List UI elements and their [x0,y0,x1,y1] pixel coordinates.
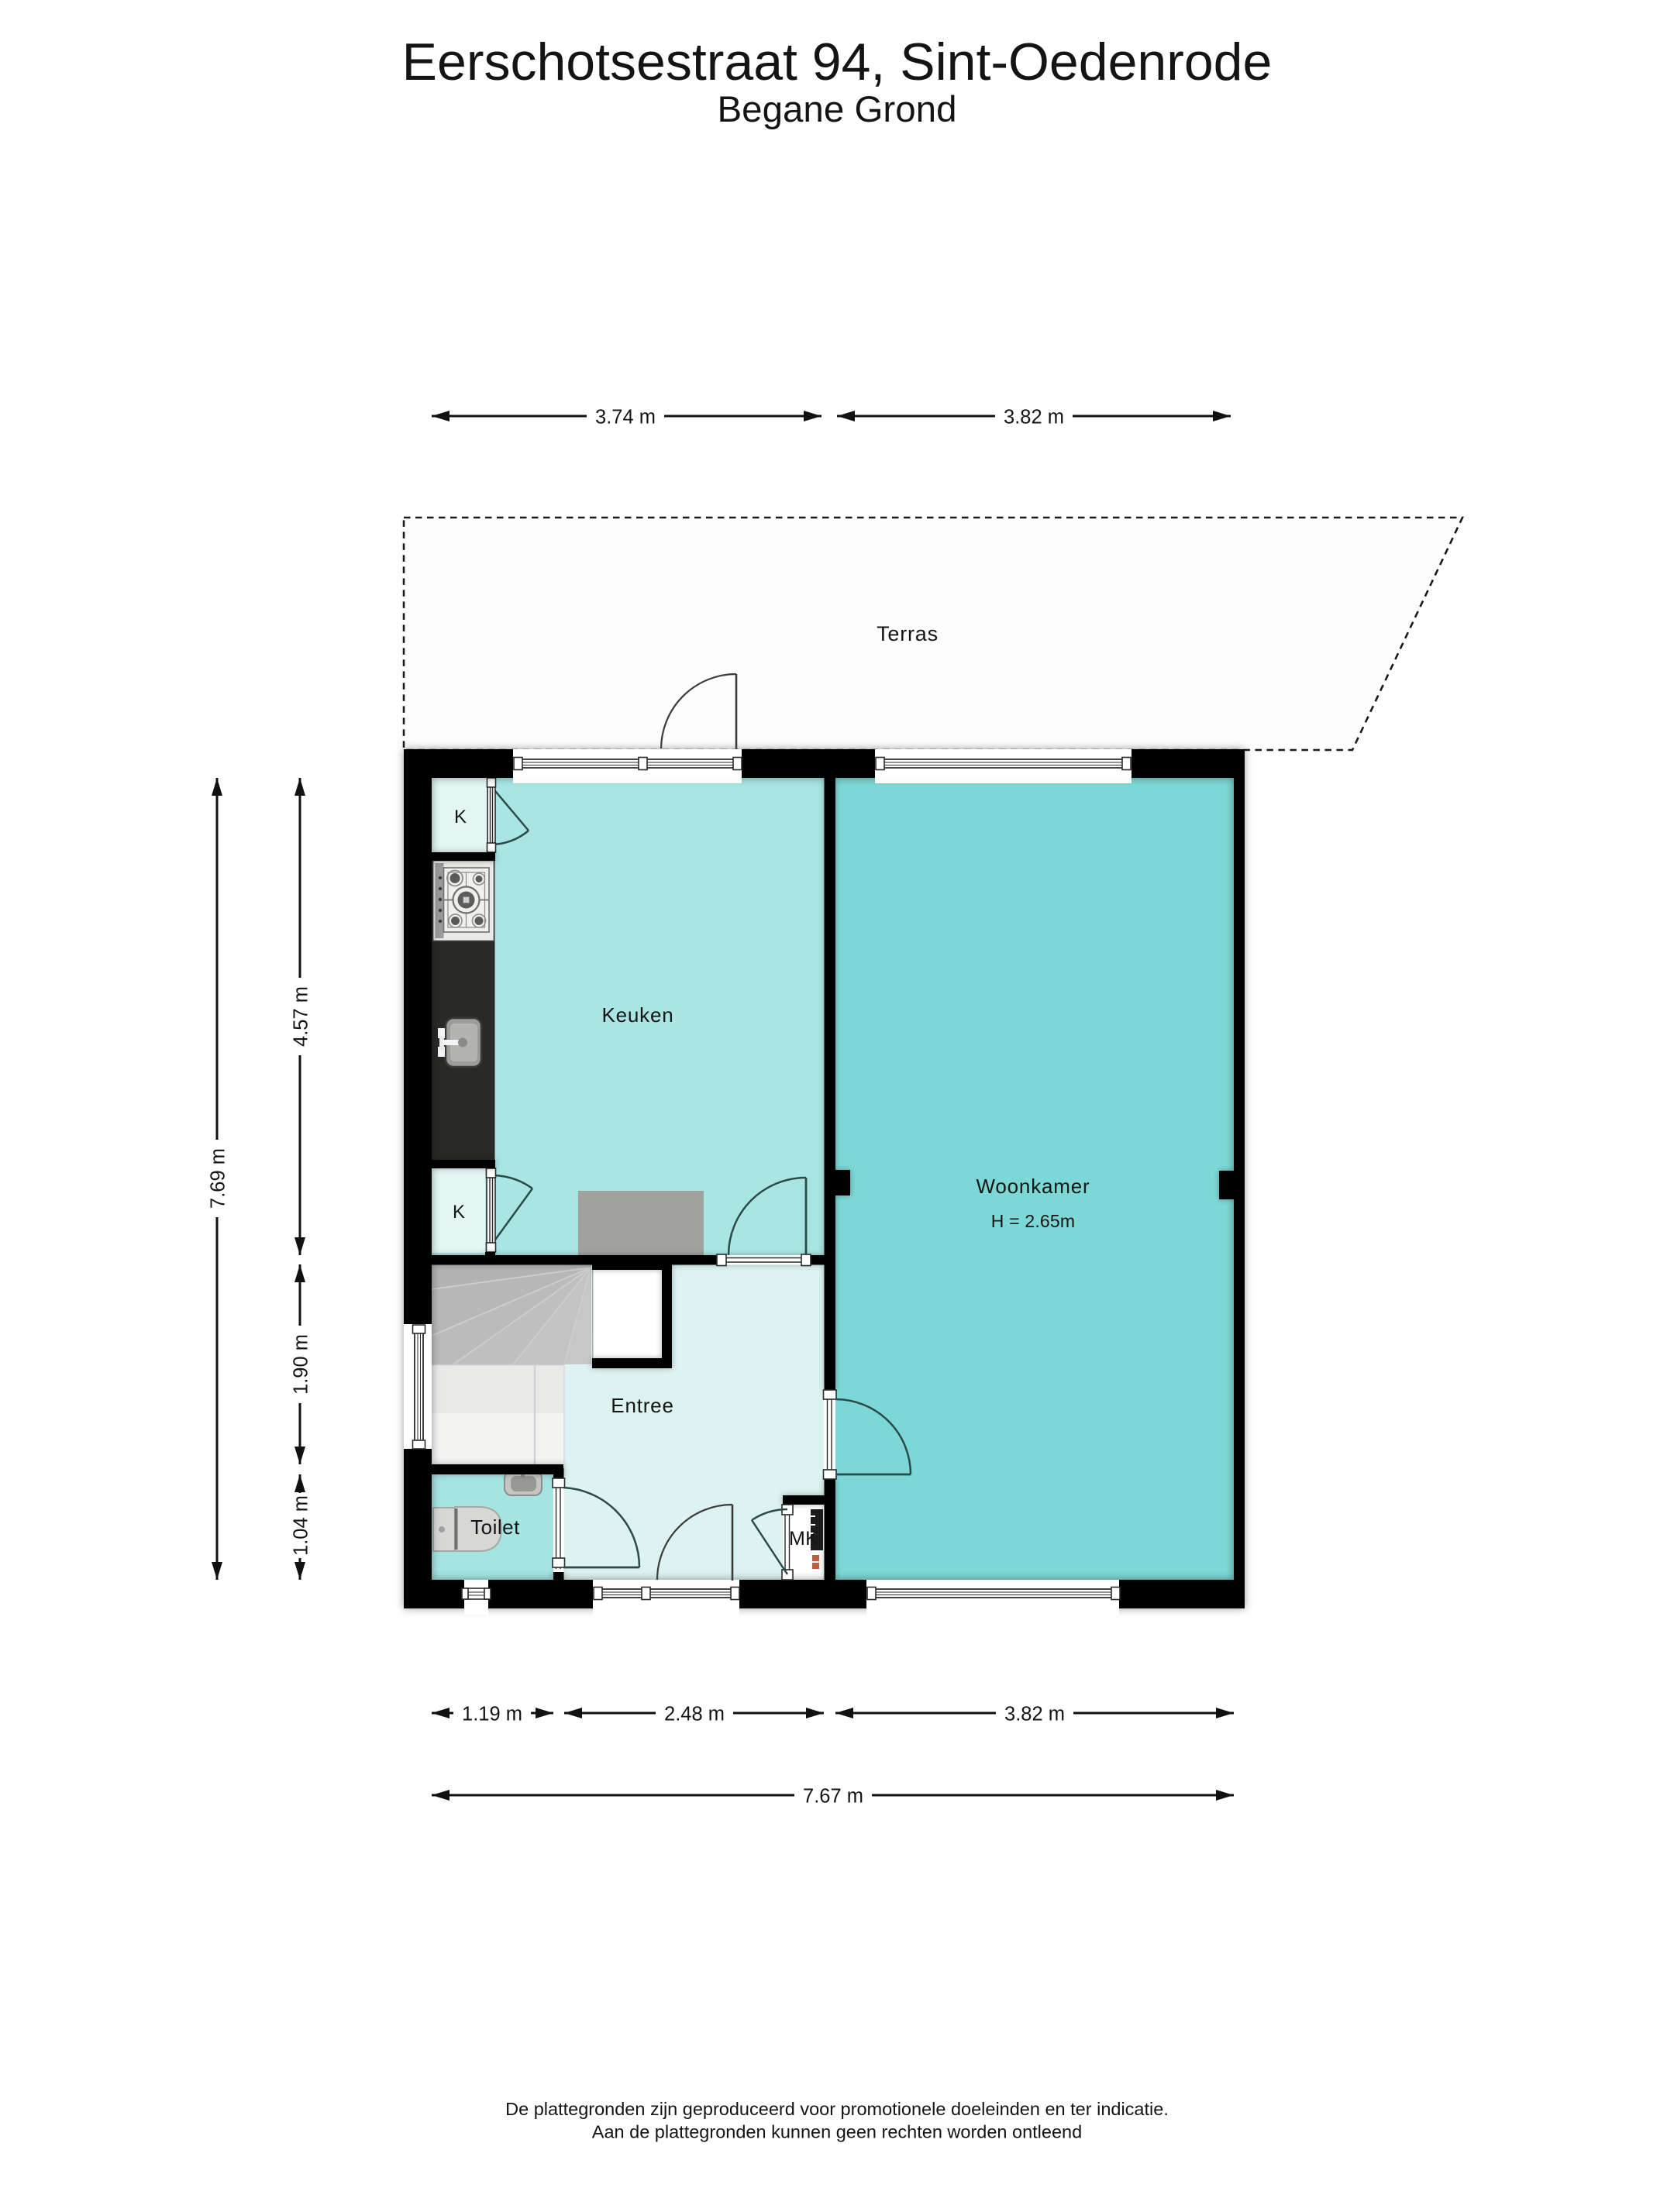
svg-text:Eerschotsestraat 94, Sint-Oede: Eerschotsestraat 94, Sint-Oedenrode [402,33,1273,91]
svg-text:H = 2.65m: H = 2.65m [991,1211,1076,1231]
svg-text:7.67 m: 7.67 m [803,1786,863,1808]
svg-text:K: K [454,807,467,827]
svg-text:1.90 m: 1.90 m [291,1334,312,1395]
svg-text:1.04 m: 1.04 m [291,1495,312,1556]
svg-text:1.19 m: 1.19 m [462,1704,522,1725]
svg-text:3.82 m: 3.82 m [1004,407,1064,428]
svg-text:Keuken: Keuken [602,1003,674,1027]
svg-text:Woonkamer: Woonkamer [976,1175,1090,1198]
svg-text:4.57 m: 4.57 m [291,986,312,1047]
svg-text:Toilet: Toilet [470,1515,520,1539]
svg-text:Begane Grond: Begane Grond [718,89,957,130]
svg-text:Aan de plattegronden kunnen ge: Aan de plattegronden kunnen geen rechten… [592,2122,1082,2142]
svg-text:De plattegronden zijn geproduc: De plattegronden zijn geproduceerd voor … [505,2099,1169,2119]
svg-text:3.74 m: 3.74 m [595,407,656,428]
svg-text:7.69 m: 7.69 m [208,1148,229,1209]
svg-text:MK: MK [789,1528,818,1550]
svg-text:K: K [453,1202,465,1223]
svg-text:Terras: Terras [877,622,939,645]
svg-text:3.82 m: 3.82 m [1004,1704,1065,1725]
svg-text:2.48 m: 2.48 m [664,1704,725,1725]
svg-text:Entree: Entree [611,1394,673,1417]
